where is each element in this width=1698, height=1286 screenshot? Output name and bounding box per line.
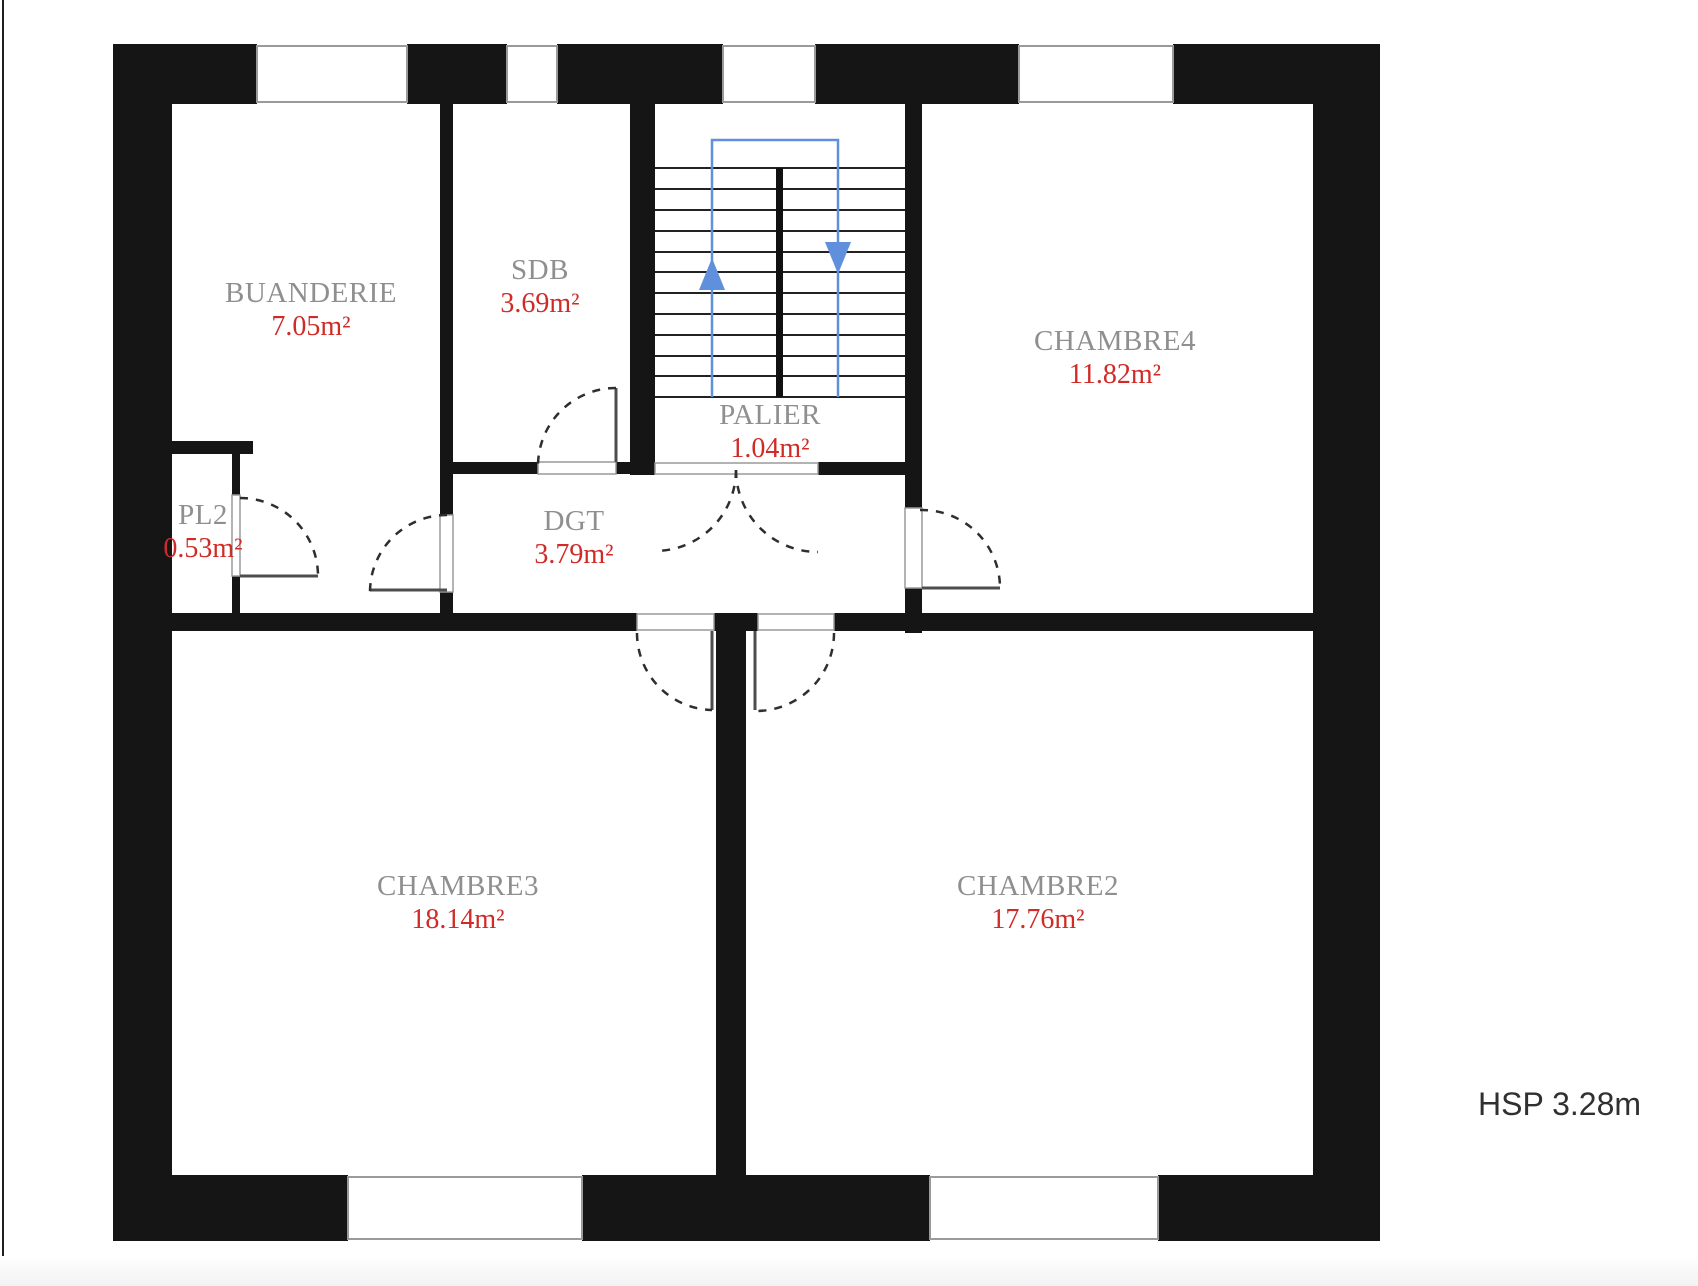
wall-top-seg [1173,44,1380,104]
door-arc-chambre4 [920,510,1000,588]
wall-buanderie-sdb [440,104,453,515]
wall-stair-left [630,104,655,475]
ceiling-height-note: HSP 3.28m [1478,1086,1641,1123]
wall-sdb-bottom [616,462,630,474]
window-buanderie [257,46,407,102]
exterior-walls [113,44,1380,1241]
wall-pl2-top [172,441,253,454]
page-bottom-fade [0,1256,1698,1286]
door-leaves [240,388,1000,710]
door-frame-chambre4 [905,508,922,588]
wall-chambre-divider [716,631,746,1175]
staircase [655,140,905,397]
door-arc-palier-left [655,470,736,551]
door-arc-chambre3 [637,633,712,710]
door-frames [232,462,922,630]
wall-sdb-bottom [450,462,538,474]
door-frame-buanderie [440,515,453,592]
wall-top-seg [557,44,723,104]
window-chambre2 [930,1177,1158,1239]
wall-palier-bottom [818,462,905,475]
window-chambre3 [348,1177,582,1239]
wall-bottom-seg [1158,1175,1380,1241]
door-frame-pl2 [232,495,240,576]
door-swing-arcs [240,388,1000,711]
wall-pl2-right [232,454,240,495]
wall-left [113,44,172,1241]
window-chambre4 [1019,46,1173,102]
page-edge-line [2,0,4,1262]
stair-center-divider [776,168,783,397]
door-frame-sdb [538,462,616,474]
window-sdb [507,46,557,102]
wall-right [1313,44,1380,1241]
door-arc-sdb [538,388,616,466]
wall-stair-right [905,104,922,508]
door-arc-palier-right [736,470,818,552]
wall-buanderie-sdb [440,592,453,613]
wall-main-horizontal [172,613,637,631]
wall-bottom-seg [582,1175,930,1241]
windows [257,46,1173,1239]
floorplan-drawing [0,0,1698,1286]
stair-guide-line [712,140,838,397]
stairs-up-arrow-icon [699,258,725,290]
wall-main-horizontal [714,613,758,631]
door-frame-chambre3 [637,614,714,630]
door-frame-chambre2 [758,614,834,630]
door-arc-chambre2 [757,633,834,711]
wall-pl2-right [232,576,240,613]
door-arc-pl2 [240,498,318,576]
floorplan-canvas: BUANDERIE 7.05m² SDB 3.69m² PALIER 1.04m… [0,0,1698,1286]
interior-walls [172,104,1313,1175]
window-stairs [723,46,815,102]
wall-bottom-seg [113,1175,348,1241]
door-arc-buanderie [370,515,447,592]
wall-main-horizontal [834,613,1313,631]
wall-top-seg [815,44,1019,104]
wall-top-seg [407,44,507,104]
wall-top-seg [113,44,257,104]
stairs-down-arrow-icon [825,242,851,274]
